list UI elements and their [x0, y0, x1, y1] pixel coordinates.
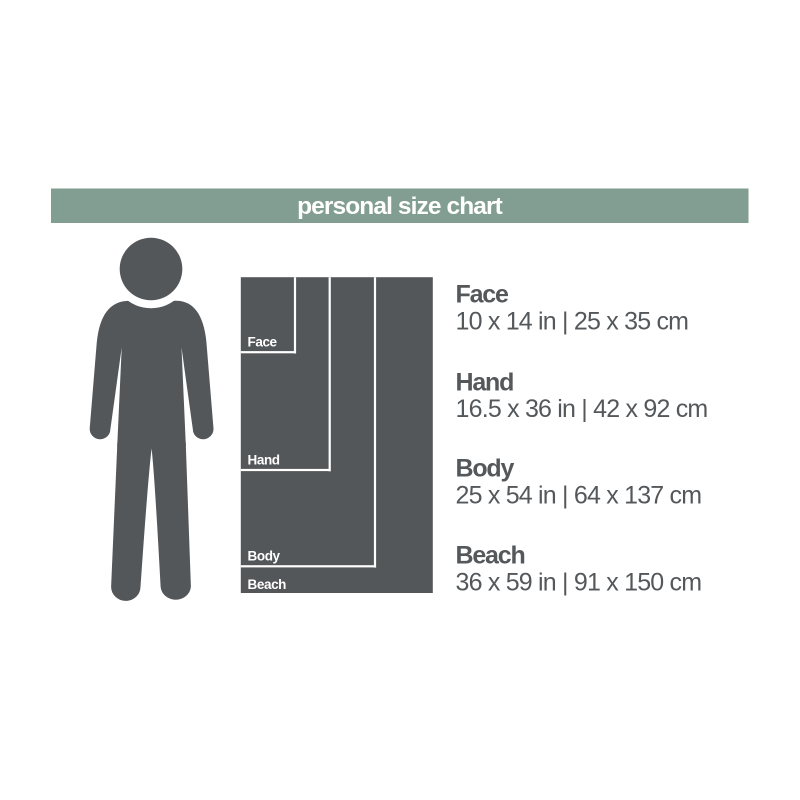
- svg-text:Hand: Hand: [456, 369, 514, 397]
- svg-text:25 x 54 in | 64 x 137 cm: 25 x 54 in | 64 x 137 cm: [456, 482, 702, 510]
- svg-text:Beach: Beach: [248, 577, 287, 592]
- svg-text:personal size chart: personal size chart: [297, 193, 503, 220]
- svg-text:36 x 59 in | 91 x 150 cm: 36 x 59 in | 91 x 150 cm: [456, 569, 702, 597]
- svg-text:Beach: Beach: [456, 542, 525, 570]
- svg-text:Body: Body: [248, 549, 281, 564]
- svg-text:Face: Face: [456, 281, 509, 309]
- svg-text:16.5 x 36 in | 42 x 92 cm: 16.5 x 36 in | 42 x 92 cm: [456, 395, 708, 423]
- svg-text:Face: Face: [248, 335, 278, 350]
- svg-text:Body: Body: [456, 455, 515, 483]
- svg-text:10 x 14 in | 25 x 35 cm: 10 x 14 in | 25 x 35 cm: [456, 308, 689, 336]
- svg-text:Hand: Hand: [248, 452, 280, 467]
